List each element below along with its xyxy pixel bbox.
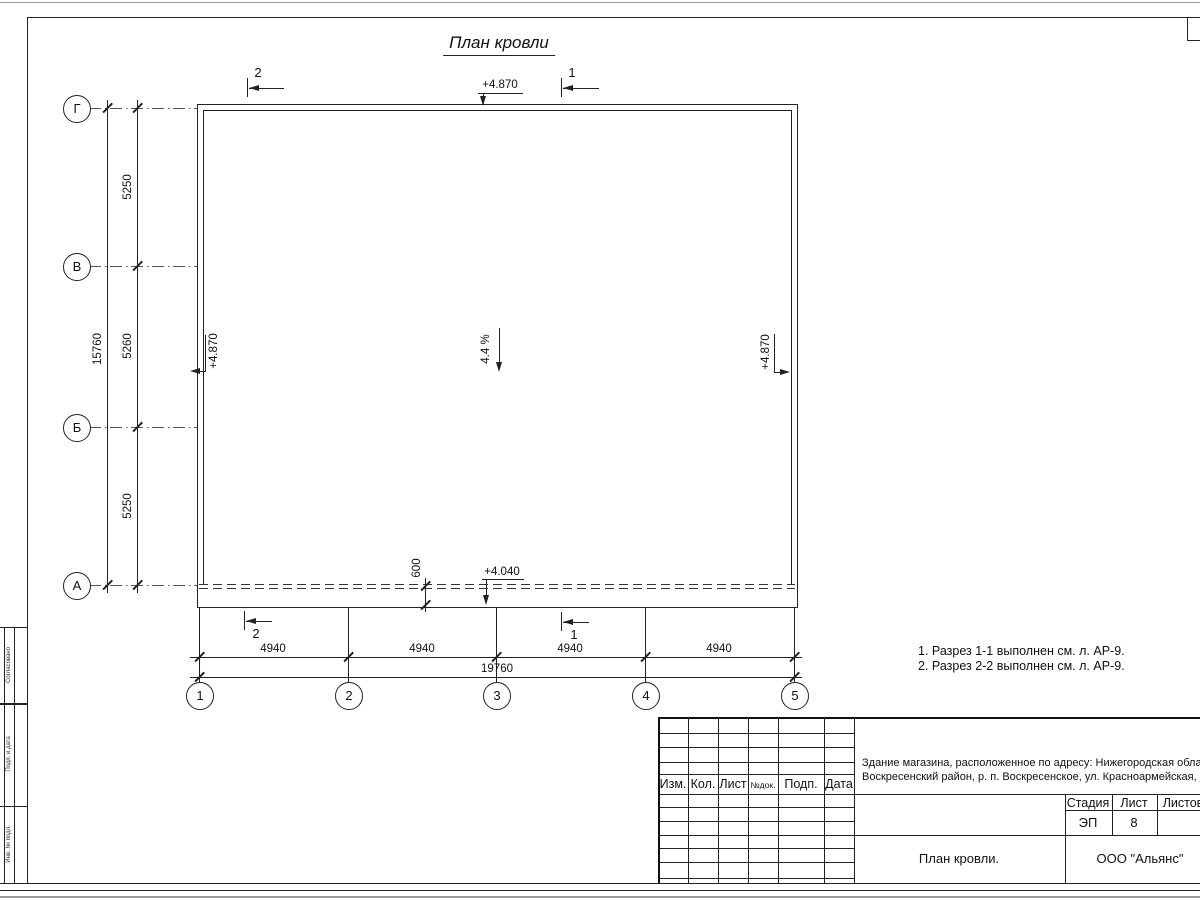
dim-value-v3: 5250 xyxy=(122,493,134,519)
margin-divider xyxy=(0,703,27,705)
axis-bubble-v: В xyxy=(63,253,91,281)
arrow-down-icon xyxy=(480,96,486,106)
extension-line-1 xyxy=(199,607,200,685)
arrow-left-icon xyxy=(563,85,573,91)
dim-value-h-total: 19760 xyxy=(481,663,513,675)
parapet-inner-left xyxy=(203,110,204,584)
titleblock-line xyxy=(824,717,825,883)
elevation-leader xyxy=(478,93,523,94)
elevation-leader xyxy=(774,334,775,372)
axis-bubble-5: 5 xyxy=(781,682,809,710)
titleblock-line xyxy=(1065,810,1200,811)
extension-line-5 xyxy=(794,607,795,685)
arrow-left-icon xyxy=(246,618,256,624)
titleblock-line xyxy=(688,717,689,883)
hidden-wall-line xyxy=(199,588,795,589)
margin-label-agreed: Согласовано xyxy=(6,647,12,683)
arrow-right-icon xyxy=(780,369,790,375)
elevation-leader xyxy=(486,579,487,596)
arrow-down-icon xyxy=(496,362,502,372)
elevation-roof-left: +4.870 xyxy=(208,333,220,369)
titleblock-line xyxy=(658,794,1200,795)
corner-stamp-bottom xyxy=(1187,40,1200,41)
stage-header: Стадия xyxy=(1067,796,1110,810)
elevation-leader xyxy=(205,335,206,372)
dim-value-h4: 4940 xyxy=(706,643,732,655)
elevation-leader xyxy=(482,579,524,580)
elevation-eaves: +4.040 xyxy=(484,566,520,578)
axis-bubble-a: А xyxy=(63,572,91,600)
dim-value-overhang: 600 xyxy=(411,558,423,577)
section-label-bottom-1: 1 xyxy=(570,627,577,642)
titleblock-line xyxy=(854,717,855,883)
axis-bubble-3: 3 xyxy=(483,682,511,710)
frame-left xyxy=(27,17,28,883)
margin-label-inventory: Инв. № подл. xyxy=(6,825,12,862)
titleblock-line xyxy=(1112,794,1113,835)
roof-outline xyxy=(197,104,798,608)
arrow-left-icon xyxy=(249,85,259,91)
titleblock-line xyxy=(658,717,660,883)
note-section-2: 2. Разрез 2-2 выполнен см. л. АР-9. xyxy=(918,659,1125,673)
drawing-sheet: Согласовано Подп. и дата Инв. № подл. Пл… xyxy=(0,0,1200,900)
titleblock-col-dok: №док. xyxy=(751,780,776,790)
elevation-roof-top: +4.870 xyxy=(482,79,518,91)
elevation-roof-right: +4.870 xyxy=(760,334,772,370)
axis-bubble-b: Б xyxy=(63,414,91,442)
dimension-line-vertical-chain xyxy=(137,100,138,593)
page-shadow xyxy=(0,896,1200,898)
dim-value-h3: 4940 xyxy=(557,643,583,655)
titleblock-col-list: Лист xyxy=(719,777,746,791)
section-mark-bar xyxy=(244,611,245,630)
titleblock-line xyxy=(748,717,749,883)
object-description-line1: Здание магазина, расположенное по адресу… xyxy=(862,757,1200,771)
frame-top xyxy=(27,17,1200,18)
section-label-top-1: 1 xyxy=(568,65,575,80)
sheet-header: Лист xyxy=(1120,796,1147,810)
titleblock-line xyxy=(658,717,1200,719)
extension-line-2 xyxy=(348,607,349,685)
slope-label: 4.4 % xyxy=(480,334,492,363)
arrow-down-icon xyxy=(483,595,489,605)
section-mark-bar xyxy=(247,78,248,97)
parapet-inner-top xyxy=(203,110,791,111)
titleblock-col-kol: Кол. xyxy=(691,777,716,791)
axis-bubble-4: 4 xyxy=(632,682,660,710)
titleblock-col-data: Дата xyxy=(825,777,853,791)
axis-line-b xyxy=(89,427,197,428)
dim-value-v1: 5250 xyxy=(122,174,134,200)
dim-value-v-total: 15760 xyxy=(92,333,104,365)
section-mark-bar xyxy=(561,78,562,97)
margin-column-line xyxy=(14,627,15,883)
organization-name: ООО "Альянс" xyxy=(1097,851,1184,866)
dim-value-h2: 4940 xyxy=(409,643,435,655)
titleblock-col-podp: Подп. xyxy=(784,777,817,791)
titleblock-col-izm: Изм. xyxy=(660,777,687,791)
note-section-1: 1. Разрез 1-1 выполнен см. л. АР-9. xyxy=(918,644,1125,658)
object-description-line2: Воскресенский район, р. п. Воскресенское… xyxy=(862,771,1200,785)
frame-bottom xyxy=(0,883,1200,884)
margin-divider xyxy=(0,627,27,628)
margin-label-sign-date: Подп. и дата xyxy=(6,736,12,771)
dimension-line-horizontal-total xyxy=(190,677,802,678)
corner-stamp-left xyxy=(1187,17,1188,40)
parapet-inner-right xyxy=(791,110,792,584)
titleblock-line xyxy=(658,835,1200,836)
arrow-left-icon xyxy=(563,619,573,625)
drawing-title: План кровли xyxy=(443,33,555,56)
titleblock-line xyxy=(778,717,779,883)
section-label-bottom-2: 2 xyxy=(252,626,259,641)
dim-value-v2: 5260 xyxy=(122,333,134,359)
margin-column-line xyxy=(4,627,5,883)
page-edge-bottom xyxy=(0,890,1200,891)
dimension-line-vertical-total xyxy=(107,100,108,593)
hidden-wall-line xyxy=(199,584,795,585)
axis-bubble-g: Г xyxy=(63,95,91,123)
arrow-left-icon xyxy=(190,368,200,374)
titleblock-line xyxy=(718,717,719,883)
margin-divider xyxy=(0,806,27,807)
titleblock-drawing-title: План кровли. xyxy=(919,851,999,866)
sheet-number: 8 xyxy=(1130,815,1137,830)
axis-line-v xyxy=(89,266,197,267)
section-mark-bar xyxy=(561,612,562,631)
section-label-top-2: 2 xyxy=(254,65,261,80)
titleblock-line xyxy=(1157,794,1158,835)
axis-bubble-1: 1 xyxy=(186,682,214,710)
stage-value: ЭП xyxy=(1079,815,1098,830)
page-edge-top xyxy=(0,2,1200,3)
dim-value-h1: 4940 xyxy=(260,643,286,655)
axis-bubble-2: 2 xyxy=(335,682,363,710)
extension-line-4 xyxy=(645,607,646,685)
sheets-header: Листов xyxy=(1163,796,1200,810)
slope-arrow-line xyxy=(499,328,500,363)
